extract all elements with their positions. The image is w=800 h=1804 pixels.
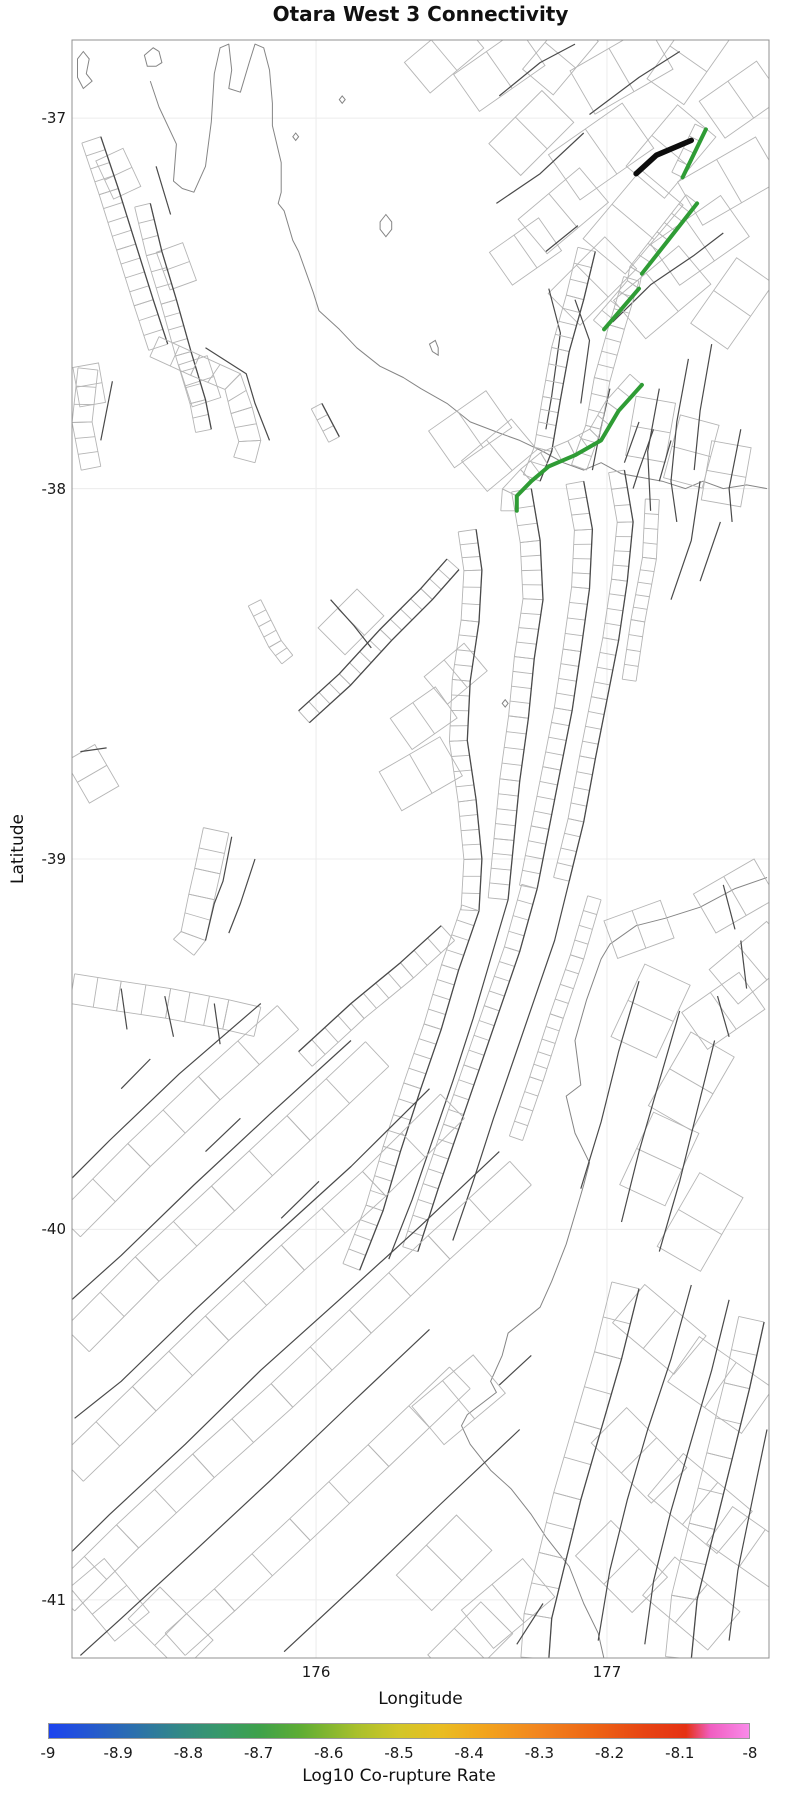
colorbar-tick: -8.2 — [595, 1744, 624, 1762]
colorbar-tick: -8.5 — [384, 1744, 413, 1762]
colorbar-tick: -8 — [743, 1744, 758, 1762]
chart-title: Otara West 3 Connectivity — [72, 2, 769, 26]
y-tick: -41 — [42, 1591, 67, 1609]
colorbar-tick: -8.8 — [174, 1744, 203, 1762]
y-tick: -39 — [42, 850, 67, 868]
y-tick: -38 — [42, 480, 67, 498]
y-tick: -37 — [42, 109, 67, 127]
colorbar-tick: -8.4 — [455, 1744, 484, 1762]
colorbar-tick: -8.7 — [244, 1744, 273, 1762]
colorbar-tick: -8.9 — [104, 1744, 133, 1762]
colorbar-tick: -8.3 — [525, 1744, 554, 1762]
colorbar — [48, 1723, 750, 1739]
figure: Otara West 3 Connectivity Longitude Lati… — [0, 0, 800, 1804]
y-tick: -40 — [42, 1220, 67, 1238]
colorbar-tick: -8.1 — [665, 1744, 694, 1762]
colorbar-tick: -9 — [41, 1744, 56, 1762]
colorbar-label: Log10 Co-rupture Rate — [48, 1766, 750, 1786]
x-axis-label: Longitude — [72, 1689, 769, 1709]
x-tick: 176 — [302, 1663, 331, 1681]
colorbar-tick: -8.6 — [314, 1744, 343, 1762]
x-tick: 177 — [593, 1663, 622, 1681]
y-axis-label: Latitude — [8, 814, 28, 884]
map-canvas — [0, 0, 800, 1804]
